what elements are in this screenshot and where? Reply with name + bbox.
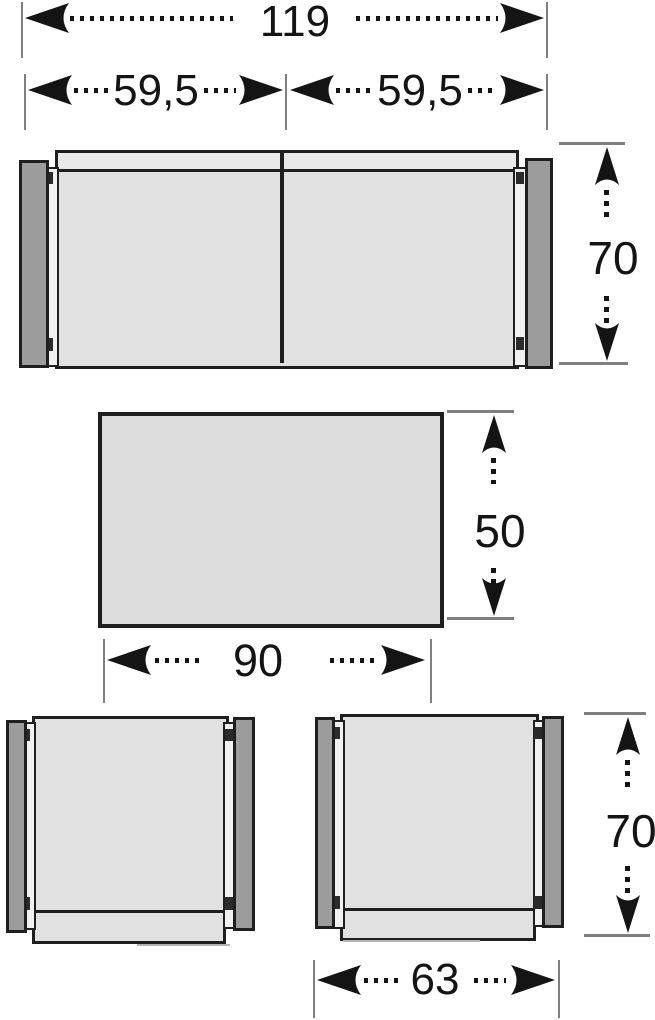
extension-line: [546, 2, 548, 58]
dotted-leader: [474, 978, 506, 983]
arrow-up-icon: [594, 146, 620, 186]
arrow-left-icon: [24, 2, 70, 34]
furniture-dimension-diagram: 119 59,5 59,5 70 50 90: [0, 0, 655, 1020]
arrow-up-icon: [481, 414, 507, 454]
dimension-label-table-width: 90: [212, 638, 304, 683]
armchair-left-right-armrest: [233, 717, 255, 931]
dotted-leader: [604, 296, 609, 324]
extension-line: [285, 74, 287, 130]
dotted-leader: [356, 16, 498, 21]
dotted-leader: [155, 658, 203, 663]
dimension-label-sofa-left-module: 59,5: [108, 69, 204, 113]
dotted-leader: [70, 16, 233, 21]
dotted-leader: [604, 190, 609, 218]
dotted-leader: [625, 760, 630, 790]
sofa-right-top-hinge: [516, 172, 524, 184]
dimension-label-sofa-depth: 70: [578, 235, 648, 281]
hinge: [534, 727, 542, 739]
armchair-left-seat: [32, 716, 229, 919]
arrow-left-icon: [289, 74, 335, 106]
sofa-right-bottom-hinge: [516, 337, 524, 350]
dotted-leader: [468, 88, 497, 93]
arrow-right-icon: [238, 74, 284, 106]
extension-line: [559, 362, 628, 365]
armchair-right-front-strip: [340, 908, 536, 941]
hinge: [225, 729, 233, 741]
hinge: [225, 897, 233, 910]
shadow-line: [137, 944, 230, 946]
arrow-right-icon: [499, 74, 545, 106]
arrow-right-icon: [510, 964, 556, 996]
arrow-down-icon: [481, 577, 507, 617]
armchair-right-left-armrest: [315, 717, 335, 929]
table-top: [98, 412, 444, 628]
dotted-leader: [204, 88, 236, 93]
extension-line: [559, 142, 625, 145]
dotted-leader: [364, 978, 398, 983]
dotted-leader: [625, 866, 630, 894]
armchair-right-seat: [340, 714, 539, 916]
extension-line: [584, 712, 646, 715]
arrow-right-icon: [380, 644, 426, 676]
sofa-left-armrest: [19, 160, 49, 368]
dotted-leader: [491, 458, 496, 484]
arrow-left-icon: [106, 644, 152, 676]
extension-line: [430, 639, 432, 703]
dimension-label-sofa-total-width: 119: [235, 0, 355, 44]
dotted-leader: [74, 88, 108, 93]
extension-line: [546, 74, 548, 130]
sofa-right-armrest: [525, 158, 553, 369]
extension-line: [584, 934, 650, 937]
arrow-down-icon: [615, 894, 641, 934]
sofa-body: [55, 150, 519, 369]
hinge: [534, 896, 542, 909]
arrow-down-icon: [594, 322, 620, 362]
extension-line: [24, 74, 26, 130]
dimension-label-sofa-right-module: 59,5: [372, 69, 468, 113]
arrow-right-icon: [499, 2, 545, 34]
extension-line: [558, 960, 560, 1018]
sofa-seat-divider: [280, 150, 284, 363]
dotted-leader: [336, 88, 370, 93]
extension-line: [447, 617, 514, 620]
arrow-up-icon: [615, 716, 641, 756]
arrow-left-icon: [316, 964, 362, 996]
extension-line: [447, 410, 514, 413]
sofa-backrest: [58, 153, 516, 172]
extension-line: [21, 2, 23, 58]
extension-line: [313, 960, 315, 1018]
arrow-left-icon: [27, 74, 73, 106]
dotted-leader: [330, 658, 374, 663]
shadow-line: [343, 940, 480, 942]
armchair-right-right-armrest: [542, 716, 564, 928]
dimension-label-table-depth: 50: [464, 508, 536, 554]
dimension-label-armchair-width: 63: [398, 958, 472, 1002]
armchair-left-left-armrest: [6, 720, 27, 933]
extension-line: [103, 639, 105, 703]
dimension-label-armchair-depth: 70: [596, 808, 655, 854]
armchair-left-front-strip: [32, 910, 226, 944]
